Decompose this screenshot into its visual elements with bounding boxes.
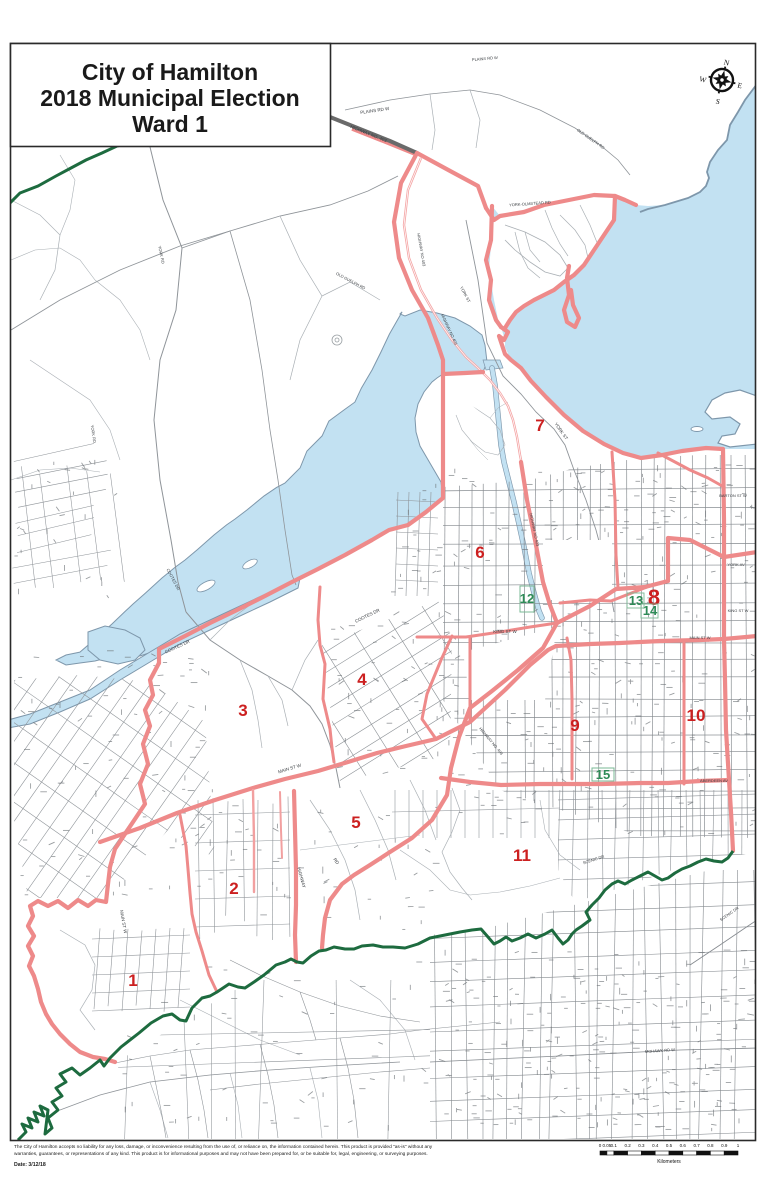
svg-text:0.1: 0.1: [611, 1143, 618, 1148]
svg-text:5: 5: [351, 813, 360, 832]
svg-text:The City of Hamilton accepts n: The City of Hamilton accepts no liabilit…: [14, 1144, 433, 1150]
svg-text:YORK AV: YORK AV: [727, 562, 745, 567]
svg-text:0.2: 0.2: [624, 1143, 631, 1148]
svg-text:0.9: 0.9: [721, 1143, 728, 1148]
svg-text:0.8: 0.8: [707, 1143, 714, 1148]
svg-text:0.5: 0.5: [666, 1143, 673, 1148]
svg-text:12: 12: [520, 591, 534, 606]
svg-text:11: 11: [513, 846, 531, 865]
svg-text:10: 10: [687, 706, 706, 725]
svg-text:0.4: 0.4: [652, 1143, 659, 1148]
svg-text:3: 3: [238, 701, 247, 720]
svg-text:KING ST W: KING ST W: [493, 629, 517, 634]
svg-text:KING ST W: KING ST W: [728, 608, 749, 613]
svg-text:MAIN ST W: MAIN ST W: [689, 635, 710, 640]
svg-text:0.6: 0.6: [680, 1143, 687, 1148]
svg-text:4: 4: [357, 670, 367, 689]
svg-text:7: 7: [535, 416, 544, 435]
svg-text:ABERDEEN AV: ABERDEEN AV: [700, 778, 728, 783]
svg-text:warranties, guarantees, or rep: warranties, guarantees, or representatio…: [14, 1151, 428, 1157]
svg-text:2: 2: [229, 879, 238, 898]
svg-text:Date: 3/12/18: Date: 3/12/18: [14, 1162, 46, 1168]
svg-text:14: 14: [643, 603, 658, 618]
svg-text:9: 9: [570, 716, 579, 735]
svg-text:15: 15: [596, 767, 610, 782]
svg-text:2018 Municipal Election: 2018 Municipal Election: [40, 85, 299, 111]
svg-text:0.3: 0.3: [638, 1143, 645, 1148]
svg-text:0.7: 0.7: [693, 1143, 700, 1148]
svg-text:Ward 1: Ward 1: [132, 111, 208, 137]
svg-text:BARTON ST W: BARTON ST W: [719, 493, 747, 498]
svg-text:Kilometers: Kilometers: [657, 1159, 681, 1165]
svg-text:1: 1: [128, 971, 137, 990]
svg-text:6: 6: [475, 543, 484, 562]
svg-text:City of Hamilton: City of Hamilton: [82, 59, 258, 85]
